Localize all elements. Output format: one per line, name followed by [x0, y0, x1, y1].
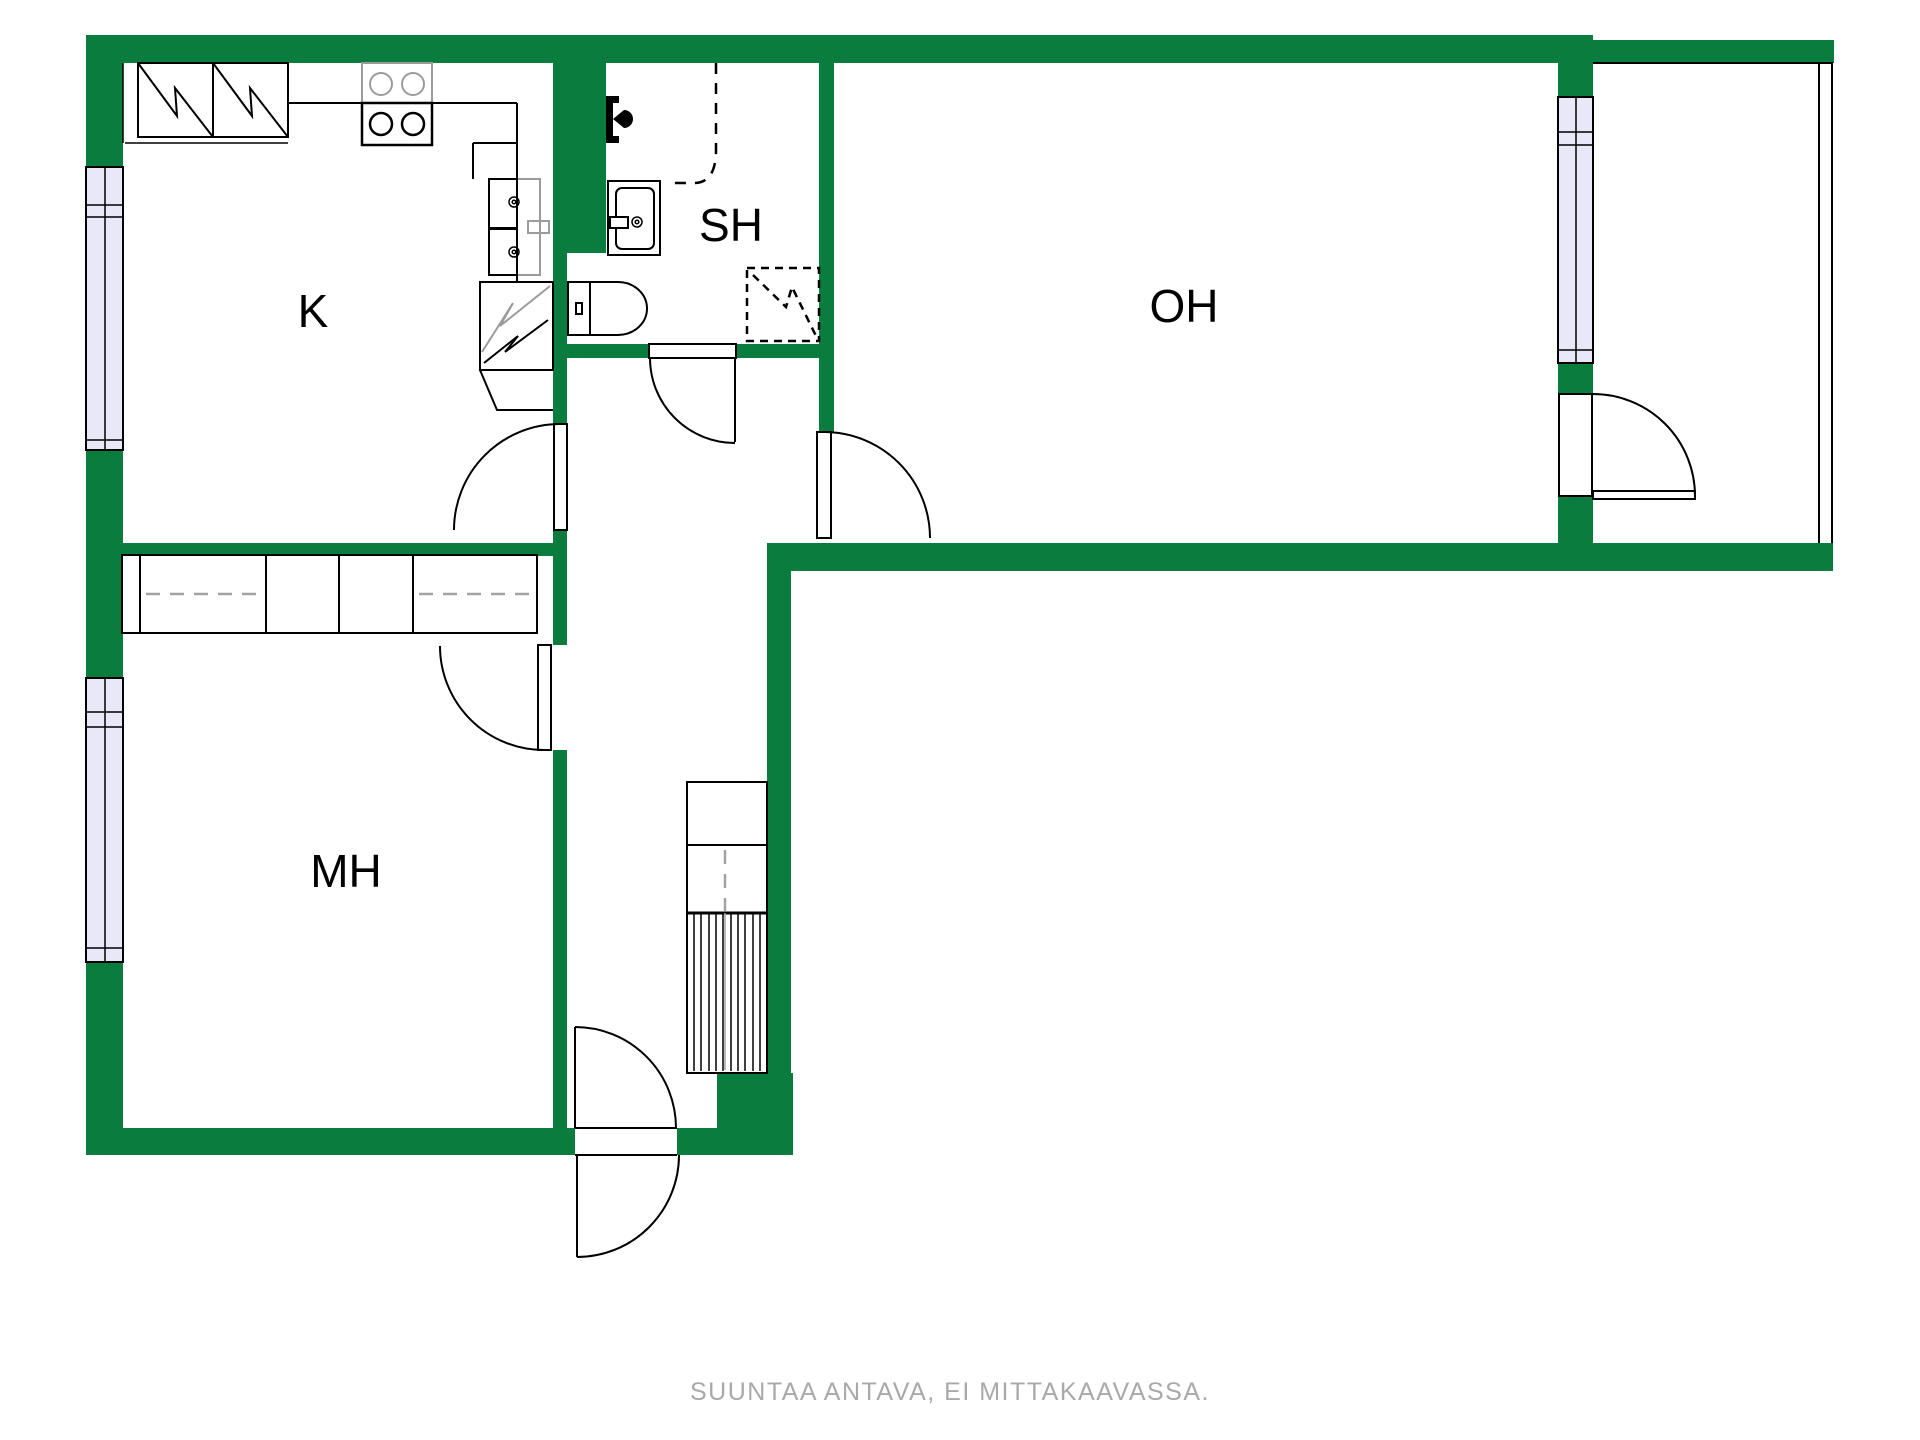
wall-shower-living [819, 63, 834, 432]
door-arc-icon [454, 424, 560, 530]
door-arc-icon [577, 1155, 679, 1257]
wall-spine-upper [553, 253, 567, 424]
door-frame [1559, 394, 1592, 496]
door-bedroom [440, 645, 551, 750]
washing-machine-reservation-icon [747, 268, 819, 341]
wall-bottom-right [677, 1128, 793, 1155]
door-threshold [575, 1128, 677, 1155]
scale-disclaimer: SUUNTAA ANTAVA, EI MITTAKAAVASSA. [690, 1378, 1210, 1406]
kitchen-sink-icon [489, 179, 549, 275]
door-leaf [554, 424, 567, 530]
shower-curtain-line [666, 63, 716, 183]
door-kitchen [454, 424, 567, 530]
window-living [1558, 97, 1593, 363]
balcony-railing-icon [1593, 63, 1833, 543]
shower-icon [606, 96, 633, 143]
door-arc-icon [650, 358, 735, 443]
room-label-bedroom: MH [310, 845, 382, 897]
washbasin-icon [608, 181, 660, 255]
room-label-shower: SH [699, 199, 763, 251]
window-bedroom [86, 678, 123, 962]
door-arc-icon [575, 1027, 676, 1128]
room-label-living: OH [1150, 280, 1219, 332]
wall-kitchen-shower [553, 63, 606, 253]
fridge-freezer-icon [138, 63, 288, 137]
stove-icon [362, 63, 432, 145]
floor-plan: K SH OH MH SUUNTAA ANTAVA, EI MITTAKAAVA… [0, 0, 1920, 1440]
wall-living-bottom [767, 543, 1833, 571]
door-arc-icon [1593, 394, 1695, 496]
faucet-icon [528, 221, 549, 233]
door-leaf [817, 432, 831, 538]
wall-living-right-bottom [1558, 496, 1593, 543]
wall-top [86, 35, 1593, 63]
wall-living-right-top [1558, 63, 1593, 97]
wardrobe-icon [122, 555, 537, 633]
door-shower [649, 344, 736, 443]
door-arc-icon [440, 646, 544, 750]
wall-shower-bottom-right [736, 344, 819, 358]
wall-living-right-stub [1558, 363, 1593, 394]
floor-plan-page: K SH OH MH SUUNTAA ANTAVA, EI MITTAKAAVA… [0, 0, 1920, 1440]
door-living [817, 432, 930, 538]
window-kitchen [86, 167, 123, 450]
wall-shower-bottom-left [567, 344, 649, 358]
stairs-icon [687, 782, 767, 1073]
wall-bottom-left [86, 1128, 575, 1155]
wall-spine-lower [553, 750, 567, 1128]
toilet-icon [568, 282, 647, 335]
door-balcony [1559, 394, 1695, 499]
door-arc-icon [824, 432, 930, 538]
door-leaf [1593, 491, 1695, 499]
wall-balcony-top [1593, 40, 1834, 63]
corner-cabinet-icon [480, 282, 553, 410]
kitchen-fixtures [123, 63, 553, 410]
door-frame [649, 344, 736, 358]
wall-under-stairs [717, 1073, 793, 1128]
room-label-kitchen: K [298, 285, 329, 337]
wall-hall-right [767, 571, 791, 1073]
door-entrance [575, 1027, 679, 1257]
door-leaf [538, 645, 551, 750]
